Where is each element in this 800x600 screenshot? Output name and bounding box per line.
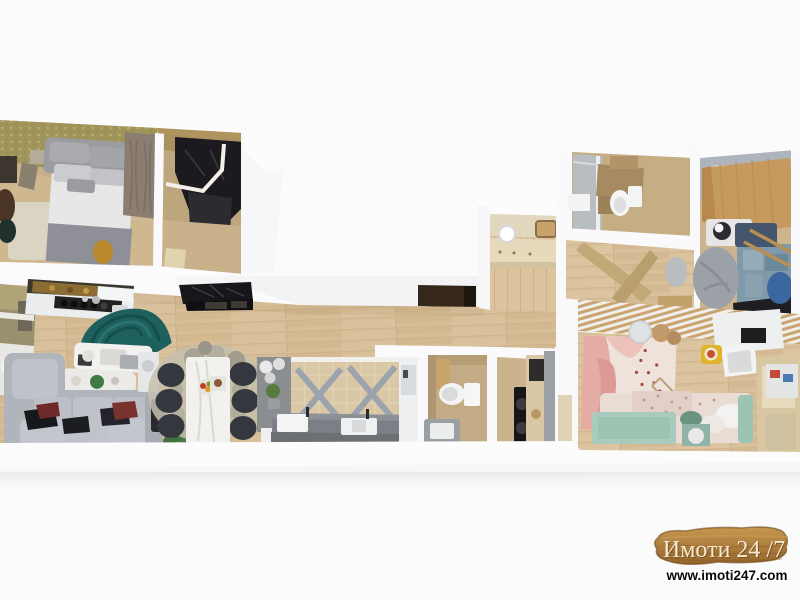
svg-text:www.imoti247.com: www.imoti247.com — [665, 568, 787, 583]
svg-text:Имоти 24 /7: Имоти 24 /7 — [663, 537, 785, 563]
